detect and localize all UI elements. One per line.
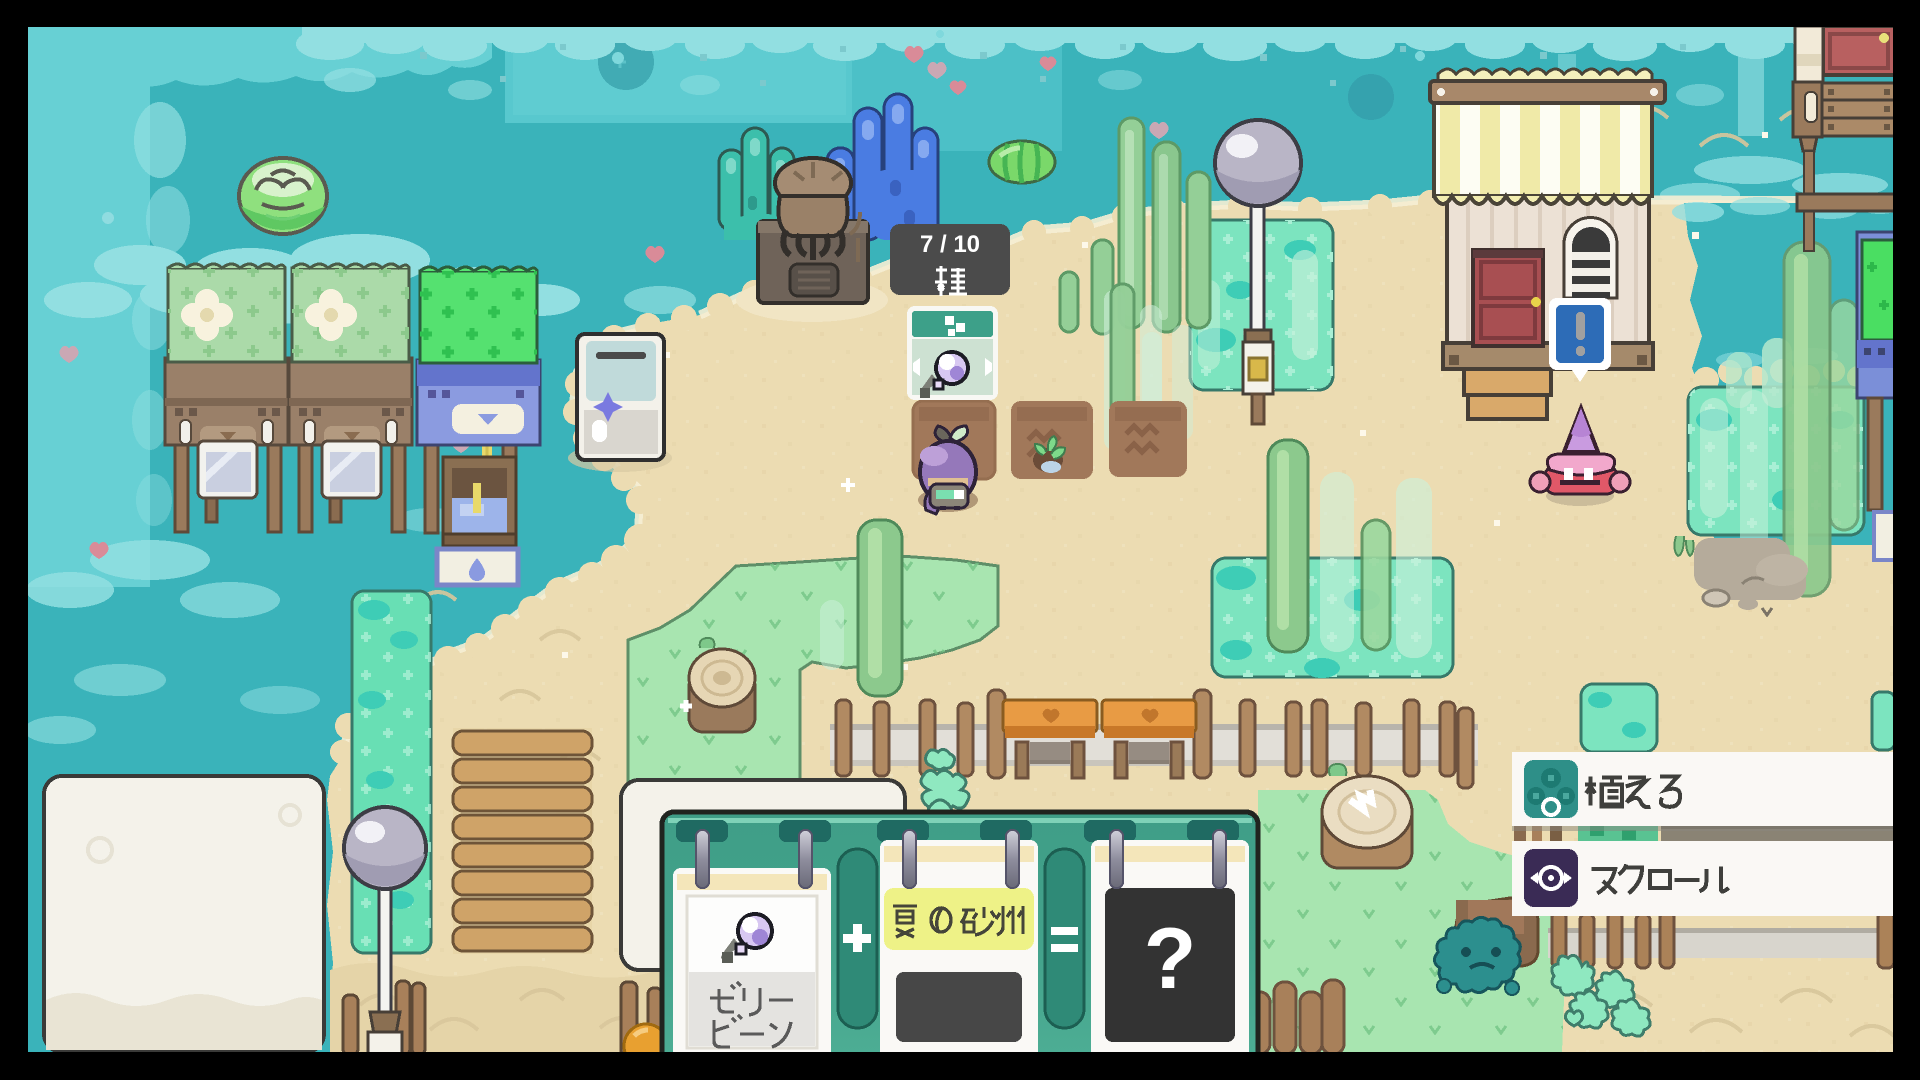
svg-text:?: ? <box>1144 911 1197 1007</box>
svg-text:7 / 10: 7 / 10 <box>920 231 980 258</box>
